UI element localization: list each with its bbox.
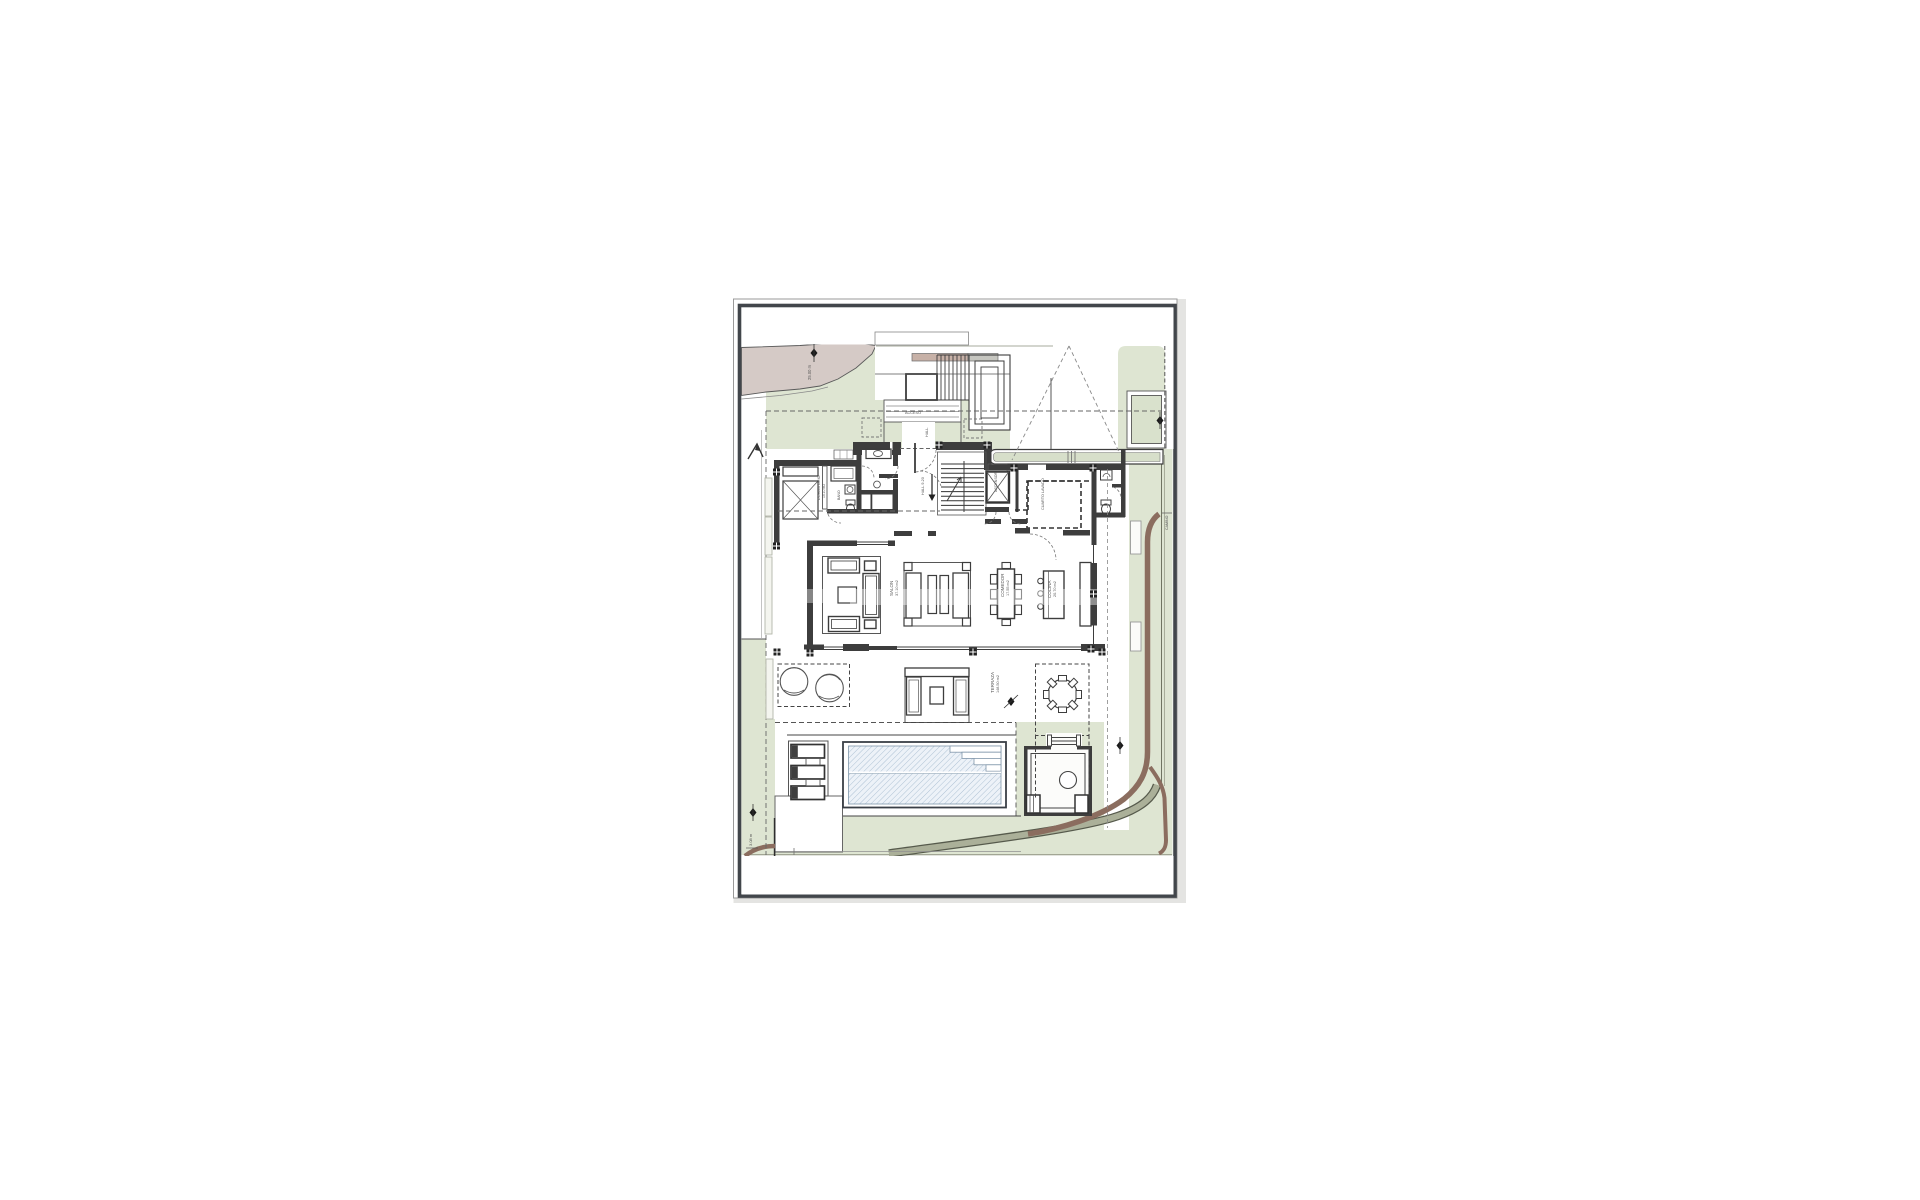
svg-text:CUARTO LAVADO: CUARTO LAVADO [1041,478,1045,510]
svg-text:148.50 m2: 148.50 m2 [996,675,1000,693]
svg-text:HALL 9.20: HALL 9.20 [921,477,925,495]
svg-text:ASCENSOR: ASCENSOR [994,471,998,492]
svg-text:HALL: HALL [925,428,929,438]
svg-text:DORMITORIO: DORMITORIO [817,475,821,500]
svg-text:37.10 m2: 37.10 m2 [895,580,899,596]
svg-text:17.55 m2: 17.55 m2 [1006,580,1010,596]
svg-text:25.00 m: 25.00 m [807,364,812,380]
svg-text:TERRAZA: TERRAZA [990,672,995,693]
svg-text:ACCESO: ACCESO [905,411,921,415]
svg-text:COCINA: COCINA [1047,580,1052,598]
svg-text:COMEDOR: COMEDOR [1000,573,1005,597]
svg-text:20.70 m2: 20.70 m2 [1053,581,1057,597]
svg-text:SALON: SALON [889,581,894,596]
svg-text:15.10 m2: 15.10 m2 [822,484,826,498]
svg-text:3.08 m: 3.08 m [748,833,753,846]
svg-text:CAMINO: CAMINO [1165,515,1169,530]
svg-text:BANO: BANO [837,490,841,500]
